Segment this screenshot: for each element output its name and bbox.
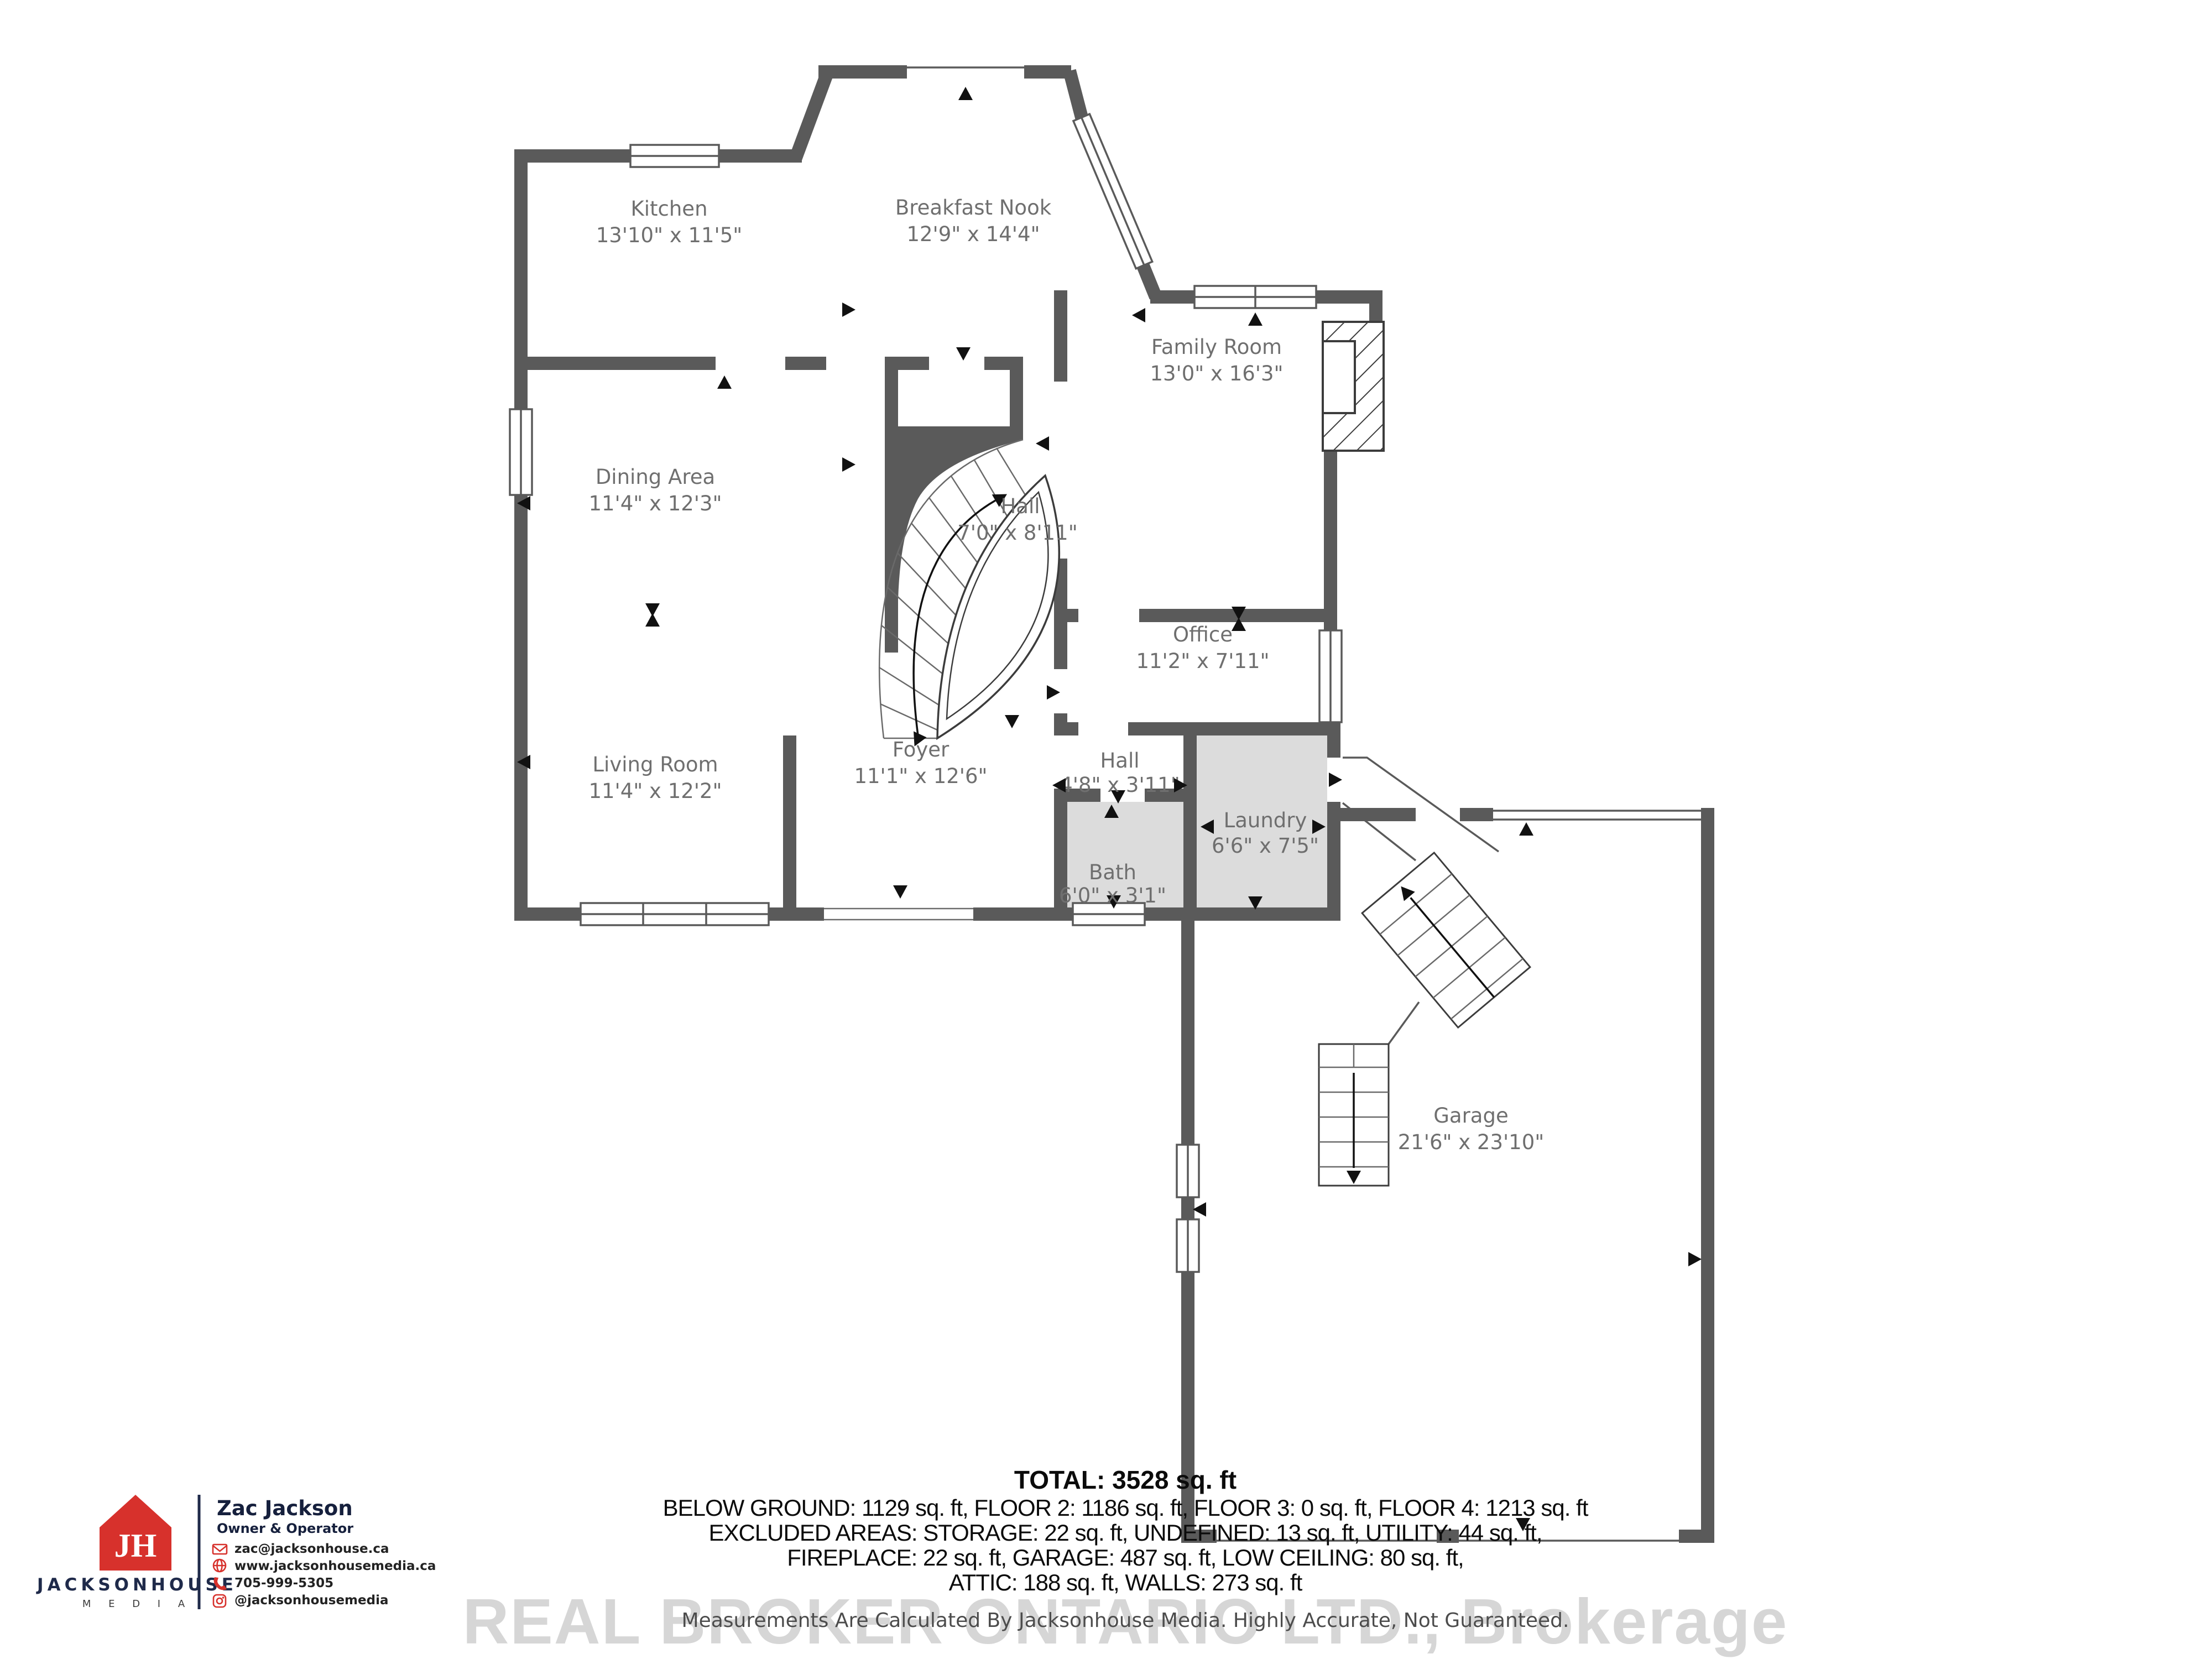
agent-instagram[interactable]: @jacksonhousemedia [234, 1593, 388, 1608]
email-icon [213, 1545, 227, 1554]
front-door-opening [824, 906, 973, 922]
room-label-kitchen: Kitchen 13'10" x 11'5" [596, 197, 743, 247]
room-label-family-room: Family Room 13'0" x 16'3" [1150, 335, 1283, 385]
direction-arrows [517, 87, 1702, 1531]
agent-card: Zac Jackson Owner & Operator zac@jackson… [213, 1496, 436, 1608]
dining-window [510, 409, 532, 495]
room-label-foyer: Foyer 11'1" x 12'6" [854, 738, 987, 788]
agent-title: Owner & Operator [217, 1521, 353, 1536]
summary-excluded-3: ATTIC: 188 sq. ft, WALLS: 273 sq. ft [949, 1569, 1303, 1595]
svg-text:7'0" x 8'11": 7'0" x 8'11" [957, 521, 1078, 545]
garage-window-upper [1177, 1145, 1199, 1197]
agent-email[interactable]: zac@jacksonhouse.ca [234, 1542, 389, 1556]
instagram-icon [213, 1595, 226, 1607]
svg-text:M E D I A: M E D I A [82, 1598, 192, 1610]
svg-text:Bath: Bath [1089, 860, 1136, 884]
stair-railing-outer [937, 476, 1059, 738]
svg-text:11'2" x 7'11": 11'2" x 7'11" [1136, 649, 1269, 673]
svg-text:Family Room: Family Room [1151, 335, 1282, 359]
room-label-garage: Garage 21'6" x 23'10" [1398, 1104, 1545, 1154]
svg-text:6'6" x 7'5": 6'6" x 7'5" [1212, 834, 1319, 858]
agent-phone[interactable]: 705-999-5305 [234, 1576, 333, 1590]
office-window [1319, 630, 1342, 722]
room-label-dining-area: Dining Area 11'4" x 12'3" [588, 465, 722, 515]
svg-text:Office: Office [1173, 623, 1233, 646]
living-room-window [581, 903, 769, 925]
svg-text:13'10" x 11'5": 13'10" x 11'5" [596, 223, 743, 247]
straight-flight [1319, 1044, 1389, 1186]
summary-floors: BELOW GROUND: 1129 sq. ft, FLOOR 2: 1186… [663, 1495, 1589, 1521]
svg-text:Hall: Hall [1100, 749, 1139, 773]
measurement-disclaimer: Measurements Are Calculated By Jacksonho… [682, 1609, 1569, 1632]
svg-text:Foyer: Foyer [893, 738, 950, 761]
room-label-office: Office 11'2" x 7'11" [1136, 623, 1269, 673]
agent-name: Zac Jackson [217, 1496, 353, 1520]
svg-text:11'4" x 12'3": 11'4" x 12'3" [588, 492, 722, 515]
family-room-window [1194, 286, 1316, 308]
curved-staircase [879, 440, 1059, 749]
svg-text:13'0" x 16'3": 13'0" x 16'3" [1150, 362, 1283, 385]
svg-text:11'1" x 12'6": 11'1" x 12'6" [854, 764, 987, 788]
globe-icon [213, 1559, 226, 1572]
floor-plan: Kitchen 13'10" x 11'5" Breakfast Nook 12… [510, 65, 1714, 1543]
svg-text:4'8" x 3'11": 4'8" x 3'11" [1060, 773, 1180, 797]
svg-text:Laundry: Laundry [1224, 808, 1307, 832]
room-label-living-room: Living Room 11'4" x 12'2" [588, 753, 722, 803]
bay-window [1073, 114, 1152, 268]
room-label-hall-small: Hall 4'8" x 3'11" [1052, 749, 1187, 797]
svg-text:Dining Area: Dining Area [596, 465, 715, 489]
kitchen-window [630, 145, 719, 167]
summary-total: TOTAL: 3528 sq. ft [1014, 1465, 1237, 1494]
svg-text:Garage: Garage [1433, 1104, 1508, 1128]
svg-text:6'0" x 3'1": 6'0" x 3'1" [1059, 884, 1166, 907]
svg-text:Breakfast Nook: Breakfast Nook [895, 196, 1052, 220]
svg-text:JACKSONHOUSE: JACKSONHOUSE [36, 1575, 237, 1595]
windows [510, 114, 1342, 1272]
svg-text:Hall: Hall [1000, 494, 1040, 518]
svg-text:Kitchen: Kitchen [630, 197, 707, 221]
svg-text:12'9" x 14'4": 12'9" x 14'4" [906, 222, 1040, 246]
svg-text:11'4" x 12'2": 11'4" x 12'2" [588, 779, 722, 803]
floor-plan-page: Kitchen 13'10" x 11'5" Breakfast Nook 12… [0, 0, 2212, 1659]
brand-footer: JH JACKSONHOUSE M E D I A Zac Jackson Ow… [36, 1495, 436, 1610]
svg-text:JH: JH [114, 1527, 157, 1564]
summary-excluded-1: EXCLUDED AREAS: STORAGE: 22 sq. ft, UNDE… [708, 1520, 1542, 1546]
garage-window-lower [1177, 1219, 1199, 1272]
jacksonhouse-logo: JH JACKSONHOUSE M E D I A [36, 1495, 237, 1610]
svg-text:21'6" x 23'10": 21'6" x 23'10" [1398, 1130, 1545, 1154]
fireplace [1323, 322, 1384, 451]
room-label-breakfast-nook: Breakfast Nook 12'9" x 14'4" [895, 196, 1052, 246]
agent-website[interactable]: www.jacksonhousemedia.ca [234, 1559, 436, 1573]
svg-text:Living Room: Living Room [592, 753, 718, 776]
summary-excluded-2: FIREPLACE: 22 sq. ft, GARAGE: 487 sq. ft… [787, 1545, 1463, 1571]
